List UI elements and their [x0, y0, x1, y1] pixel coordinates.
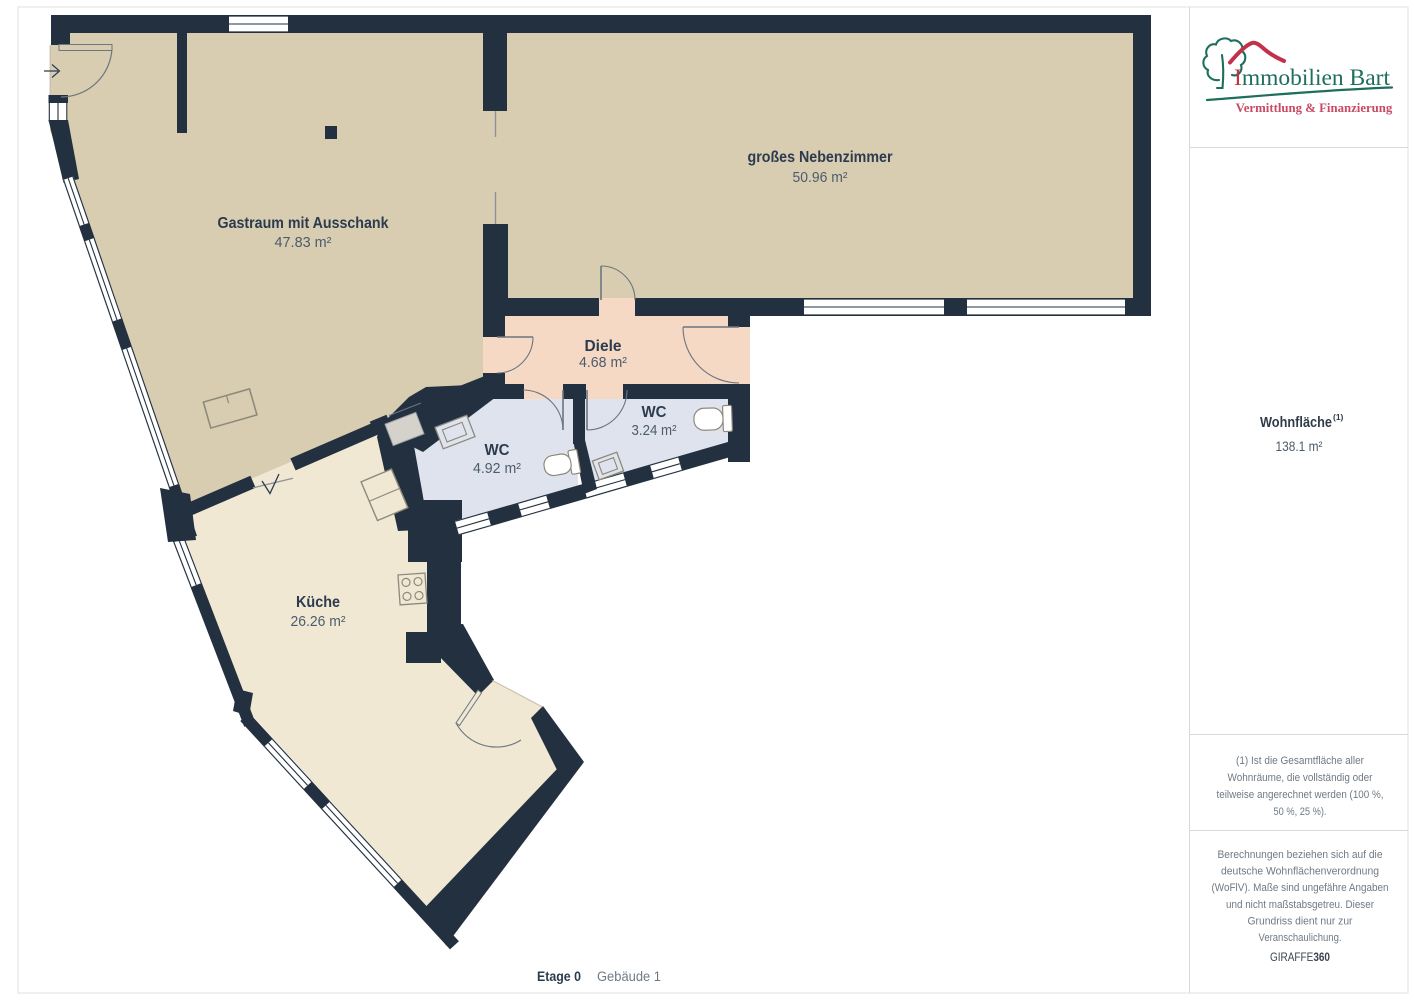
svg-text:Grundriss dient nur zur: Grundriss dient nur zur [1248, 915, 1353, 927]
svg-text:Küche: Küche [296, 594, 340, 611]
svg-text:und nicht maßstabsgetreu. Dies: und nicht maßstabsgetreu. Dieser [1226, 899, 1374, 911]
svg-text:Gastraum mit Ausschank: Gastraum mit Ausschank [218, 215, 389, 232]
svg-text:großes Nebenzimmer: großes Nebenzimmer [748, 149, 893, 166]
svg-text:4.68 m²: 4.68 m² [579, 355, 627, 371]
svg-text:Veranschaulichung.: Veranschaulichung. [1259, 932, 1342, 944]
svg-text:deutsche Wohnflächenverordnung: deutsche Wohnflächenverordnung [1221, 866, 1379, 878]
svg-text:3.24 m²: 3.24 m² [632, 423, 677, 439]
svg-text:Berechnungen beziehen sich auf: Berechnungen beziehen sich auf die [1218, 849, 1383, 861]
svg-text:Gebäude 1: Gebäude 1 [597, 969, 661, 984]
svg-text:(1) Ist die Gesamtfläche aller: (1) Ist die Gesamtfläche aller [1236, 755, 1364, 767]
svg-text:Vermittlung & Finanzierung: Vermittlung & Finanzierung [1236, 101, 1393, 115]
svg-text:WC: WC [485, 442, 510, 459]
svg-text:GIRAFFE360: GIRAFFE360 [1270, 952, 1330, 964]
svg-text:50 %, 25 %).: 50 %, 25 %). [1274, 806, 1327, 818]
svg-text:Diele: Diele [585, 338, 622, 355]
svg-text:138.1 m²: 138.1 m² [1276, 438, 1323, 454]
svg-text:Wohnräume, die vollständig ode: Wohnräume, die vollständig oder [1228, 772, 1373, 784]
svg-text:4.92 m²: 4.92 m² [473, 461, 521, 477]
svg-text:(1): (1) [1333, 412, 1344, 422]
svg-text:50.96 m²: 50.96 m² [793, 170, 848, 186]
svg-text:Immobilien Bart: Immobilien Bart [1234, 65, 1390, 91]
svg-text:Wohnfläche: Wohnfläche [1260, 414, 1332, 431]
svg-text:47.83 m²: 47.83 m² [275, 235, 332, 251]
svg-text:(WoFlV). Maße sind ungefähre A: (WoFlV). Maße sind ungefähre Angaben [1212, 882, 1389, 894]
svg-text:Etage 0: Etage 0 [537, 969, 581, 984]
svg-text:26.26 m²: 26.26 m² [291, 614, 346, 630]
svg-text:WC: WC [642, 404, 667, 421]
svg-text:teilweise angerechnet werden (: teilweise angerechnet werden (100 %, [1217, 789, 1384, 801]
